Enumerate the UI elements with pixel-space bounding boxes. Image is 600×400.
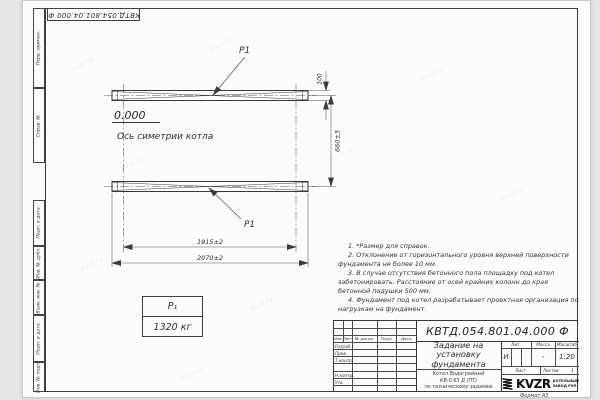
title-block: Изм. Лист № докум. Подп. Дата Разраб. Пр… — [333, 320, 578, 392]
technical-notes: 1. *Размер для справок. 2. Отклонение от… — [338, 242, 581, 314]
tb-sheet-label: Лист — [501, 366, 540, 374]
tb-line — [334, 385, 416, 386]
dim-100-text: 100 — [317, 73, 324, 85]
tb-line — [334, 378, 416, 379]
tb-col-sign: Подп. — [377, 335, 396, 342]
tb-mass-header: Масса — [531, 341, 555, 348]
tb-col-izm: Изм. — [334, 335, 343, 342]
load-table: Р₁ 1320 кг — [142, 296, 203, 337]
tb-col-doc: № докум. — [352, 335, 377, 342]
tb-sheets-label: Листов — [543, 368, 559, 373]
p1-top-label: P1 — [239, 46, 250, 56]
tb-line — [521, 348, 522, 366]
tb-col-date: Дата — [396, 335, 416, 342]
kvzr-logo-text: KVZR — [516, 377, 551, 391]
kvzr-logo: KVZR КОТЕЛЬНЫЙ ЗАВОД РЭП — [501, 374, 579, 393]
p1-bottom-leader-line — [209, 188, 241, 219]
tb-mass-value: - — [531, 348, 555, 366]
tb-subtitle-line: по техническому заданию — [424, 384, 492, 390]
tb-row-tkontr: Т.контр. — [335, 358, 353, 363]
load-value: 1320 кг — [143, 317, 202, 337]
boiler-axis-caption: Ось симетрии котла — [117, 132, 213, 142]
tb-line — [334, 363, 416, 364]
tb-row-prov: Пров. — [335, 351, 347, 356]
note-4: 4. Фундамент под котел разрабатывает про… — [338, 296, 581, 314]
tb-sheets-value: 1 — [571, 368, 574, 373]
note-2: 2. Отклонение от горизонтального уровня … — [338, 251, 581, 269]
tb-title-line: фундамента — [431, 360, 485, 369]
tb-line — [540, 366, 541, 374]
note-1: 1. *Размер для справок. — [338, 242, 581, 251]
drawing-sheet-view: kvzr.ru kvzr.ru kvzr.ru kvzr.ru kvzr.ru … — [0, 0, 600, 400]
tb-row-razrab: Разраб. — [335, 344, 351, 349]
tb-row-nkontr: Н.контр. — [335, 373, 354, 378]
p1-top-leader-line — [213, 57, 245, 95]
dim-660-lines — [309, 96, 336, 187]
tb-scale-header: Масштаб — [555, 341, 579, 348]
kvzr-logo-spring-icon — [501, 377, 514, 390]
note-3: 3. В случае отсутствия бетонного пола пл… — [338, 269, 581, 296]
dim-660-text: 660±3 — [334, 130, 342, 152]
p1-bottom-label: P1 — [244, 220, 255, 230]
tb-col-list: Лист — [343, 335, 352, 342]
tb-scale-value: 1:20 — [555, 348, 579, 366]
kvzr-logo-caption: КОТЕЛЬНЫЙ ЗАВОД РЭП — [553, 379, 579, 388]
tb-lit-header: Лит. — [501, 341, 531, 348]
tb-designation: КВТД.054.801.04.000 Ф — [416, 321, 579, 341]
elevation-mark: 0.000 — [114, 109, 146, 122]
tb-document-subtitle: Котел Водогрейный КВ-0.63 Д (ПТ) по техн… — [416, 369, 501, 393]
tb-row-utv: Утв. — [335, 380, 344, 385]
tb-document-title: Задание на установку фундамента — [416, 341, 501, 369]
tb-lit-value: И — [501, 348, 511, 366]
tb-line — [334, 328, 416, 329]
load-symbol: Р₁ — [143, 297, 202, 317]
kvzr-logo-caption-line: ЗАВОД РЭП — [553, 384, 579, 388]
dim-2070-text: 2070±2 — [197, 254, 223, 262]
dim-1915-text: 1915±2 — [197, 238, 223, 246]
tb-line — [511, 348, 512, 366]
format-label: Формат А3 — [520, 393, 548, 399]
